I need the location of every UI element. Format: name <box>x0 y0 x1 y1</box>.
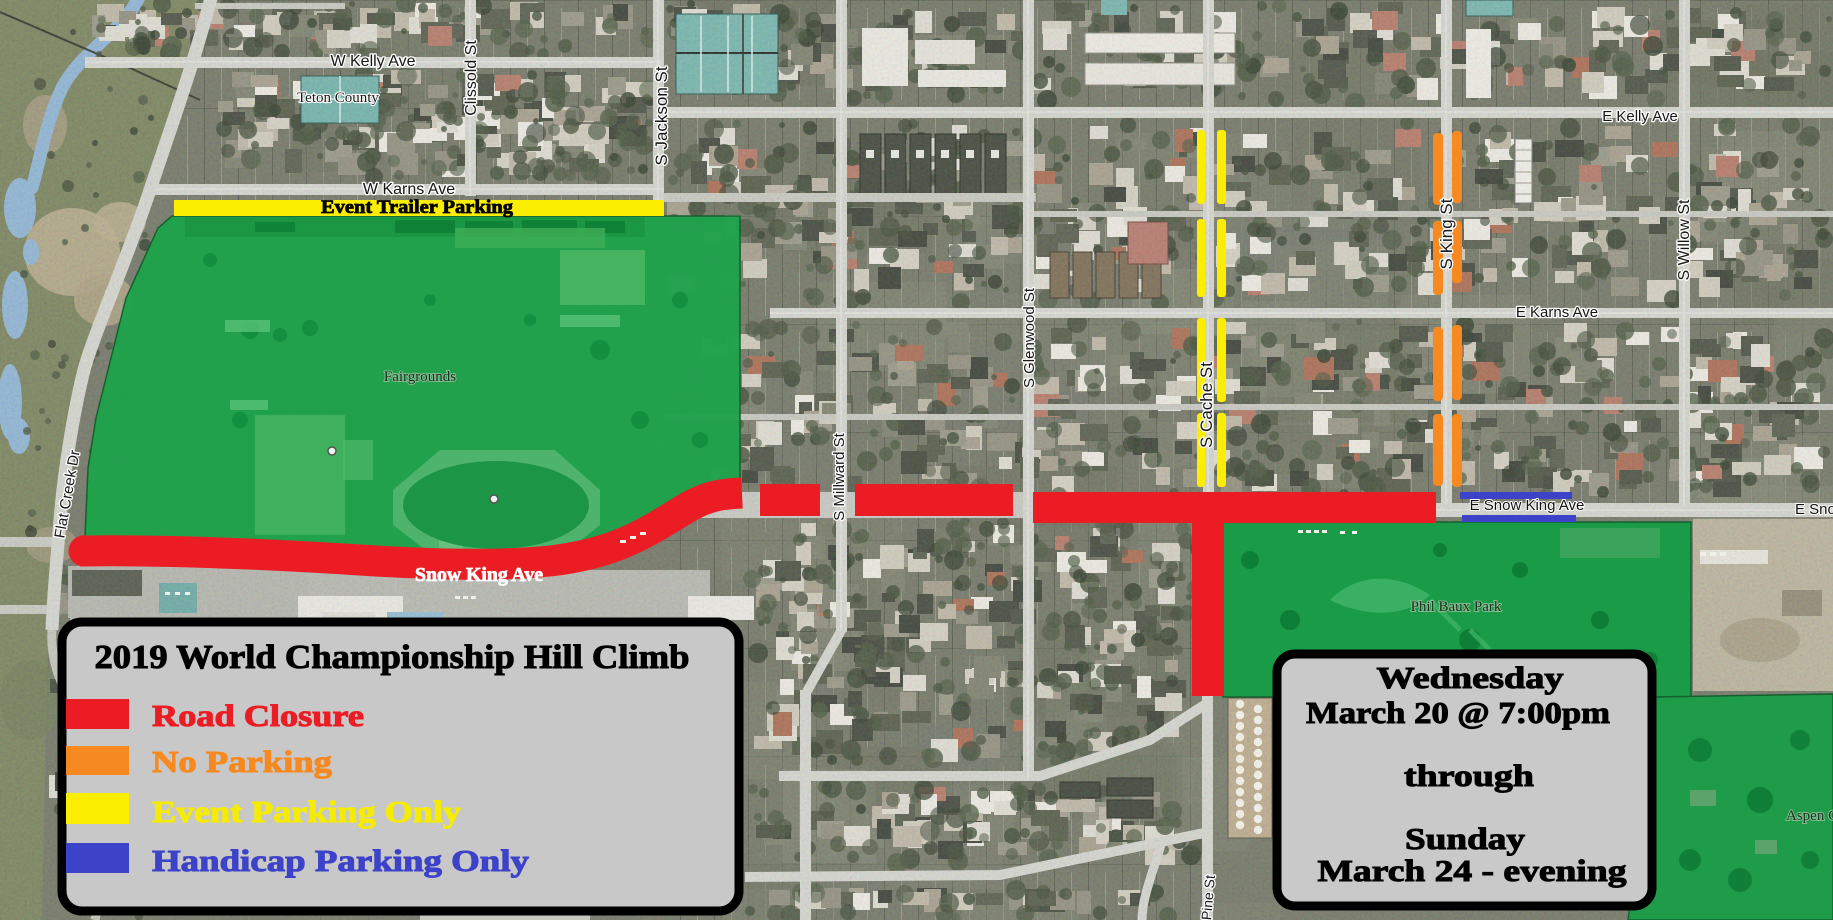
svg-text:E Kelly Ave: E Kelly Ave <box>1602 108 1678 125</box>
svg-text:S Millward St: S Millward St <box>831 432 848 520</box>
svg-text:Handicap Parking Only: Handicap Parking Only <box>152 843 530 878</box>
svg-text:through: through <box>1404 758 1534 793</box>
svg-text:Road Closure: Road Closure <box>152 698 364 733</box>
svg-text:S Glenwood St: S Glenwood St <box>1021 287 1038 388</box>
svg-text:E Snow King Ave: E Snow King Ave <box>1795 501 1833 518</box>
svg-text:Phil Baux Park: Phil Baux Park <box>1411 599 1502 615</box>
svg-text:Wednesday: Wednesday <box>1377 660 1565 695</box>
svg-text:S Willow St: S Willow St <box>1676 199 1693 280</box>
svg-text:Clissold St: Clissold St <box>463 40 480 116</box>
svg-text:S Cache St: S Cache St <box>1197 362 1216 448</box>
svg-text:March 24 - evening: March 24 - evening <box>1318 853 1628 888</box>
svg-text:Snow King Ave: Snow King Ave <box>415 564 543 586</box>
svg-text:Sunday: Sunday <box>1405 821 1526 856</box>
svg-text:2019 World Championship Hill C: 2019 World Championship Hill Climb <box>95 639 690 676</box>
svg-text:Event Trailer Parking: Event Trailer Parking <box>321 197 514 218</box>
svg-text:Fairgrounds: Fairgrounds <box>384 369 456 385</box>
svg-text:W Karns Ave: W Karns Ave <box>363 181 455 198</box>
svg-text:E Snow King Ave: E Snow King Ave <box>1470 497 1585 514</box>
svg-text:E Karns Ave: E Karns Ave <box>1516 304 1598 321</box>
svg-text:Event Parking Only: Event Parking Only <box>152 794 462 829</box>
svg-text:Teton County: Teton County <box>297 90 379 106</box>
svg-text:W Kelly Ave: W Kelly Ave <box>330 53 415 70</box>
svg-text:March 20 @ 7:00pm: March 20 @ 7:00pm <box>1306 695 1610 730</box>
svg-text:Aspen C: Aspen C <box>1786 808 1833 824</box>
svg-text:No Parking: No Parking <box>152 744 333 779</box>
svg-text:S Jackson St: S Jackson St <box>652 66 671 165</box>
svg-text:S King St: S King St <box>1437 198 1456 269</box>
